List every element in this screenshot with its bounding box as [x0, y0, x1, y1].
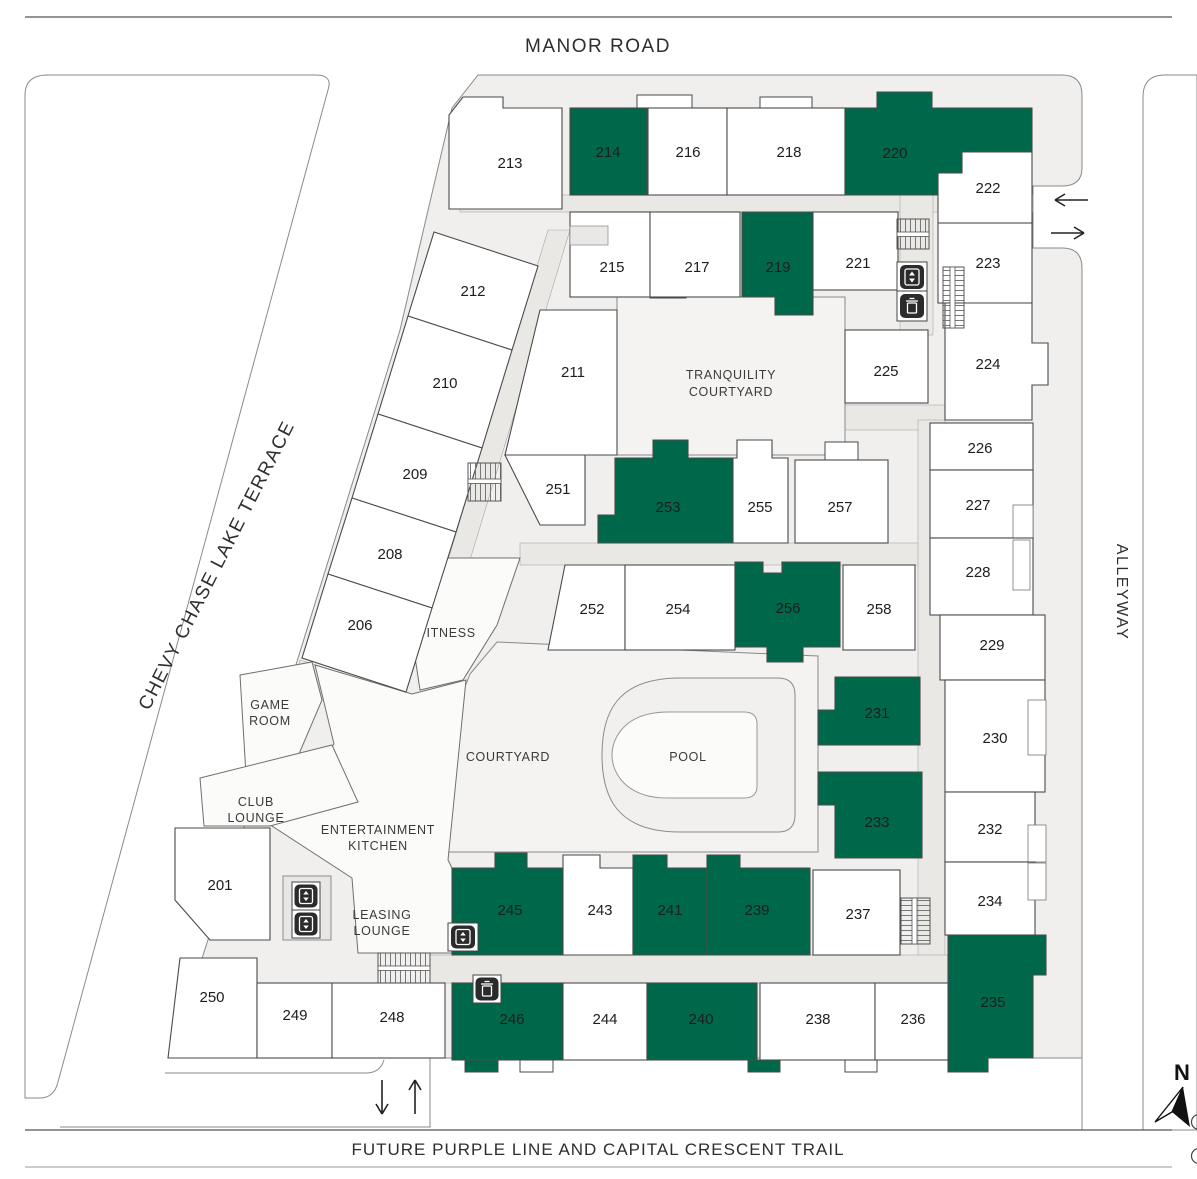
unit-255-label: 255	[747, 499, 772, 516]
unit-245-label: 245	[497, 902, 522, 919]
elevator-icon	[292, 910, 320, 938]
unit-227-label: 227	[965, 497, 990, 514]
patio-238	[845, 1060, 877, 1072]
stairs-icon	[378, 953, 430, 983]
unit-237[interactable]: 237	[813, 870, 900, 955]
unit-238[interactable]: 238	[760, 983, 875, 1060]
club-lounge-label-2: LOUNGE	[228, 811, 285, 825]
unit-243-label: 243	[587, 902, 612, 919]
unit-213-label: 213	[497, 155, 522, 172]
unit-239[interactable]: 239	[707, 855, 810, 955]
unit-256[interactable]: 256	[735, 562, 840, 662]
pool-label: POOL	[669, 750, 707, 764]
alley-entry-arrow-left-icon	[1055, 194, 1088, 206]
stairs-icon	[468, 463, 501, 501]
unit-248[interactable]: 248	[332, 983, 445, 1058]
unit-253-label: 253	[655, 499, 680, 516]
elevator-icon	[292, 882, 320, 910]
unit-218-label: 218	[776, 144, 801, 161]
stairs-icon	[943, 267, 964, 328]
kitchen-label-2: KITCHEN	[348, 839, 408, 853]
driveway-outline	[60, 1058, 430, 1127]
unit-241[interactable]: 241	[633, 855, 707, 955]
unit-209-label: 209	[402, 466, 427, 483]
amenity-courtyard: COURTYARD POOL	[433, 642, 818, 852]
unit-229[interactable]: 229	[940, 615, 1045, 680]
unit-217[interactable]: 217	[650, 212, 740, 297]
stairs-icon	[897, 219, 929, 249]
unit-243[interactable]: 243	[563, 855, 633, 955]
corridor-south	[430, 955, 1033, 983]
unit-215-shape	[570, 212, 650, 297]
unit-250-label: 250	[199, 989, 224, 1006]
street-label-alleyway: ALLEYWAY	[1113, 544, 1130, 640]
unit-228-closet	[1013, 540, 1030, 590]
unit-241-label: 241	[657, 902, 682, 919]
unit-234[interactable]: 234	[945, 862, 1046, 935]
unit-215-chase	[570, 226, 608, 245]
fitness-label: FITNESS	[418, 626, 476, 640]
unit-240-patio	[748, 1060, 780, 1072]
street-label-trail: FUTURE PURPLE LINE AND CAPITAL CRESCENT …	[351, 1140, 844, 1159]
unit-227-closet	[1013, 505, 1033, 538]
driveway-curb	[165, 1060, 384, 1073]
unit-217-shape	[650, 212, 740, 297]
unit-244[interactable]: 244	[563, 983, 647, 1060]
unit-234-closet	[1028, 863, 1046, 900]
unit-252-label: 252	[579, 601, 604, 618]
unit-221-shape	[813, 212, 898, 290]
unit-223-label: 223	[975, 255, 1000, 272]
roof-bump-216	[637, 95, 692, 108]
unit-235[interactable]: 235	[948, 935, 1046, 1072]
unit-201-label: 201	[207, 877, 232, 894]
unit-258-label: 258	[866, 601, 891, 618]
unit-226-label: 226	[967, 440, 992, 457]
street-island-east	[1143, 75, 1197, 1130]
unit-211-label: 211	[561, 364, 585, 381]
unit-231-label: 231	[864, 705, 889, 722]
patio-244	[520, 1060, 553, 1072]
bump-257	[825, 442, 858, 460]
unit-215[interactable]: 215	[570, 212, 650, 297]
unit-228-label: 228	[965, 564, 990, 581]
unit-228[interactable]: 228	[930, 538, 1033, 615]
unit-215-label: 215	[599, 259, 624, 276]
unit-213[interactable]: 213	[449, 97, 562, 209]
tranquility-label-2: COURTYARD	[689, 385, 773, 399]
unit-217-label: 217	[684, 259, 709, 276]
unit-232-label: 232	[977, 821, 1002, 838]
unit-249-label: 249	[282, 1007, 307, 1024]
unit-225-label: 225	[873, 363, 898, 380]
unit-210-label: 210	[432, 375, 457, 392]
unit-257[interactable]: 257	[795, 460, 888, 543]
unit-206-label: 206	[347, 617, 372, 634]
unit-256-label: 256	[775, 600, 800, 617]
tranquility-label-1: TRANQUILITY	[686, 368, 776, 382]
unit-230-closet	[1028, 700, 1046, 755]
game-room-label-2: ROOM	[249, 714, 291, 728]
unit-250-shape	[168, 958, 257, 1058]
trash-icon	[897, 291, 927, 321]
elevator-icon	[897, 262, 927, 292]
unit-251-label: 251	[545, 481, 570, 498]
street-label-manor-road: MANOR ROAD	[525, 36, 671, 57]
courtyard-label: COURTYARD	[466, 750, 550, 764]
unit-232-closet	[1028, 825, 1046, 862]
elevator-icon	[448, 923, 478, 951]
trash-icon	[473, 975, 501, 1003]
unit-216[interactable]: 216	[648, 108, 727, 195]
site-plan: MANOR ROAD CHEVY CHASE LAKE TERRACE ALLE…	[0, 0, 1197, 1179]
unit-246-patio	[465, 1060, 498, 1072]
unit-234-label: 234	[977, 893, 1002, 910]
legend-bullet	[1192, 1149, 1197, 1164]
unit-212-label: 212	[460, 283, 485, 300]
leasing-lounge-label-2: LOUNGE	[354, 924, 411, 938]
unit-232[interactable]: 232	[945, 792, 1046, 862]
unit-258[interactable]: 258	[843, 565, 915, 650]
leasing-lounge-label-1: LEASING	[352, 908, 411, 922]
unit-244-label: 244	[592, 1011, 617, 1028]
unit-214-label: 214	[595, 144, 620, 161]
unit-221[interactable]: 221	[813, 212, 898, 290]
unit-218[interactable]: 218	[727, 108, 845, 195]
unit-227[interactable]: 227	[930, 470, 1033, 538]
unit-254[interactable]: 254	[625, 565, 735, 650]
stairs-icon	[901, 898, 930, 944]
unit-221-label: 221	[845, 255, 870, 272]
alley-entry-arrow-right-icon	[1051, 227, 1084, 239]
unit-240-label: 240	[688, 1011, 713, 1028]
unit-216-label: 216	[675, 144, 700, 161]
unit-214[interactable]: 214	[570, 108, 647, 195]
unit-229-label: 229	[979, 637, 1004, 654]
unit-238-label: 238	[805, 1011, 830, 1028]
unit-254-label: 254	[665, 601, 690, 618]
driveway-arrow-down-icon	[376, 1080, 388, 1114]
unit-224-label: 224	[975, 356, 1000, 373]
unit-246-label: 246	[499, 1011, 524, 1028]
unit-201[interactable]: 201	[175, 828, 270, 940]
unit-226[interactable]: 226	[930, 423, 1033, 470]
unit-230[interactable]: 230	[945, 680, 1046, 792]
unit-225[interactable]: 225	[845, 330, 928, 403]
roof-bump-218	[760, 97, 812, 108]
unit-219-label: 219	[765, 259, 790, 276]
unit-235-label: 235	[980, 994, 1005, 1011]
compass-label: N	[1174, 1060, 1190, 1085]
unit-222-label: 222	[975, 180, 1000, 197]
club-lounge-label-1: CLUB	[238, 795, 274, 809]
unit-236[interactable]: 236	[875, 983, 948, 1060]
unit-246[interactable]: 246	[452, 983, 563, 1072]
unit-248-label: 248	[379, 1009, 404, 1026]
unit-239-label: 239	[744, 902, 769, 919]
driveway-arrow-up-icon	[409, 1080, 421, 1114]
unit-230-label: 230	[982, 730, 1007, 747]
unit-236-label: 236	[900, 1011, 925, 1028]
unit-257-label: 257	[827, 499, 852, 516]
unit-220-label: 220	[882, 145, 907, 162]
unit-249[interactable]: 249	[257, 983, 332, 1058]
unit-213-shape	[449, 97, 562, 209]
unit-237-label: 237	[845, 906, 870, 923]
unit-233-label: 233	[864, 814, 889, 831]
kitchen-label-1: ENTERTAINMENT	[321, 823, 435, 837]
unit-250[interactable]: 250	[168, 958, 257, 1058]
floor-plan-svg: MANOR ROAD CHEVY CHASE LAKE TERRACE ALLE…	[0, 0, 1197, 1179]
unit-208-label: 208	[377, 546, 402, 563]
game-room-label-1: GAME	[250, 698, 290, 712]
